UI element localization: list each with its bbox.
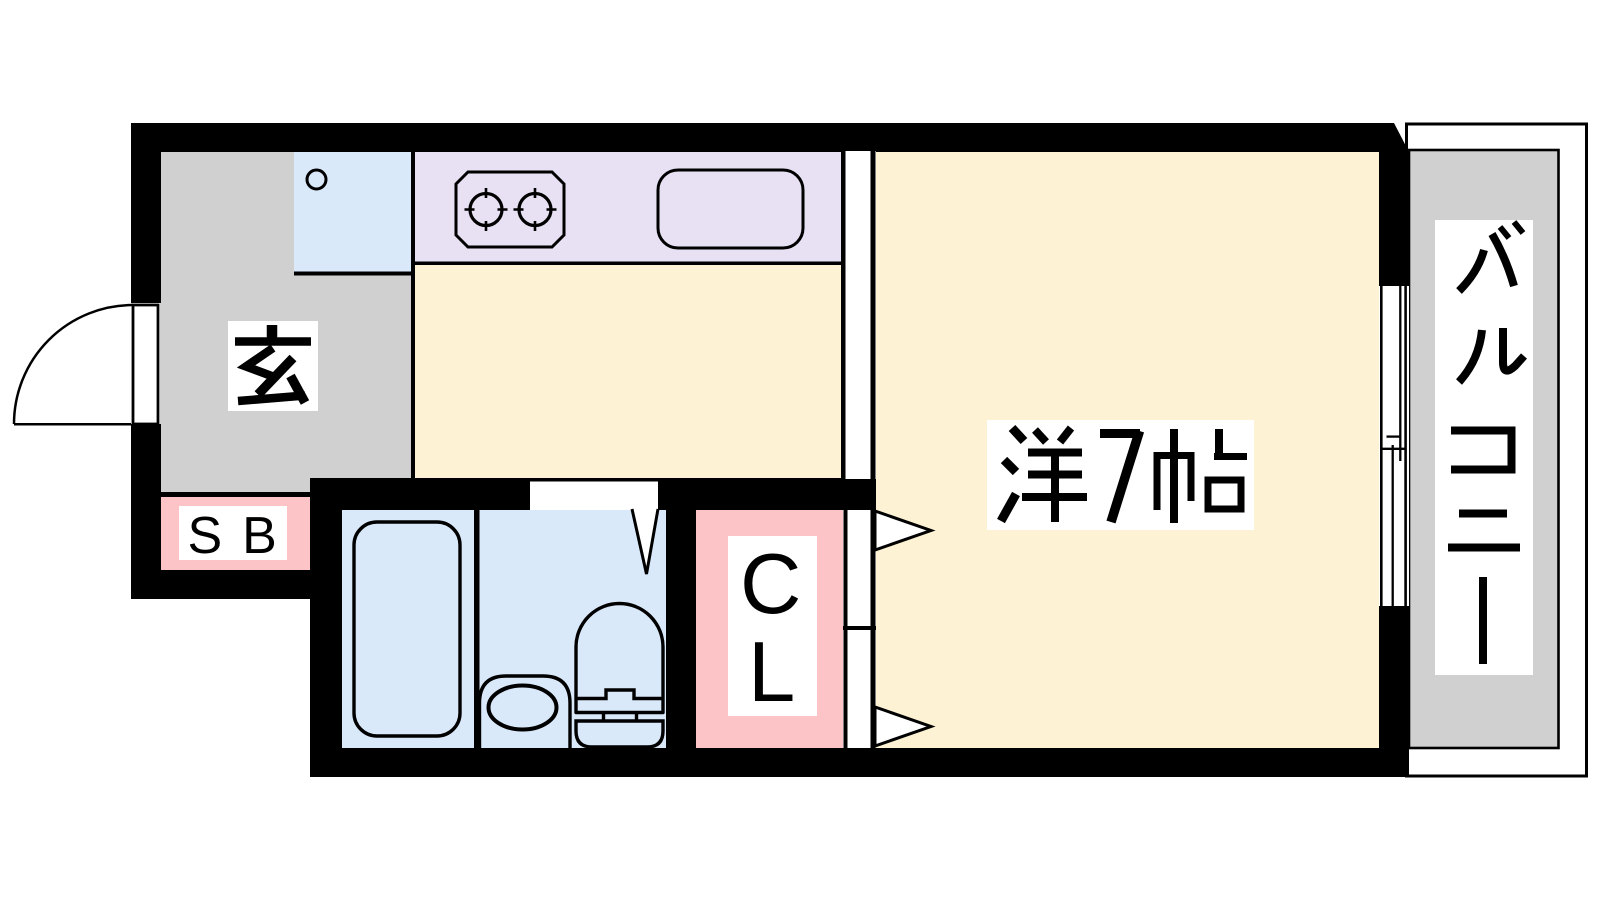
svg-text:L: L xyxy=(748,625,795,720)
svg-text:C: C xyxy=(740,537,801,632)
svg-text:SB: SB xyxy=(188,507,297,565)
